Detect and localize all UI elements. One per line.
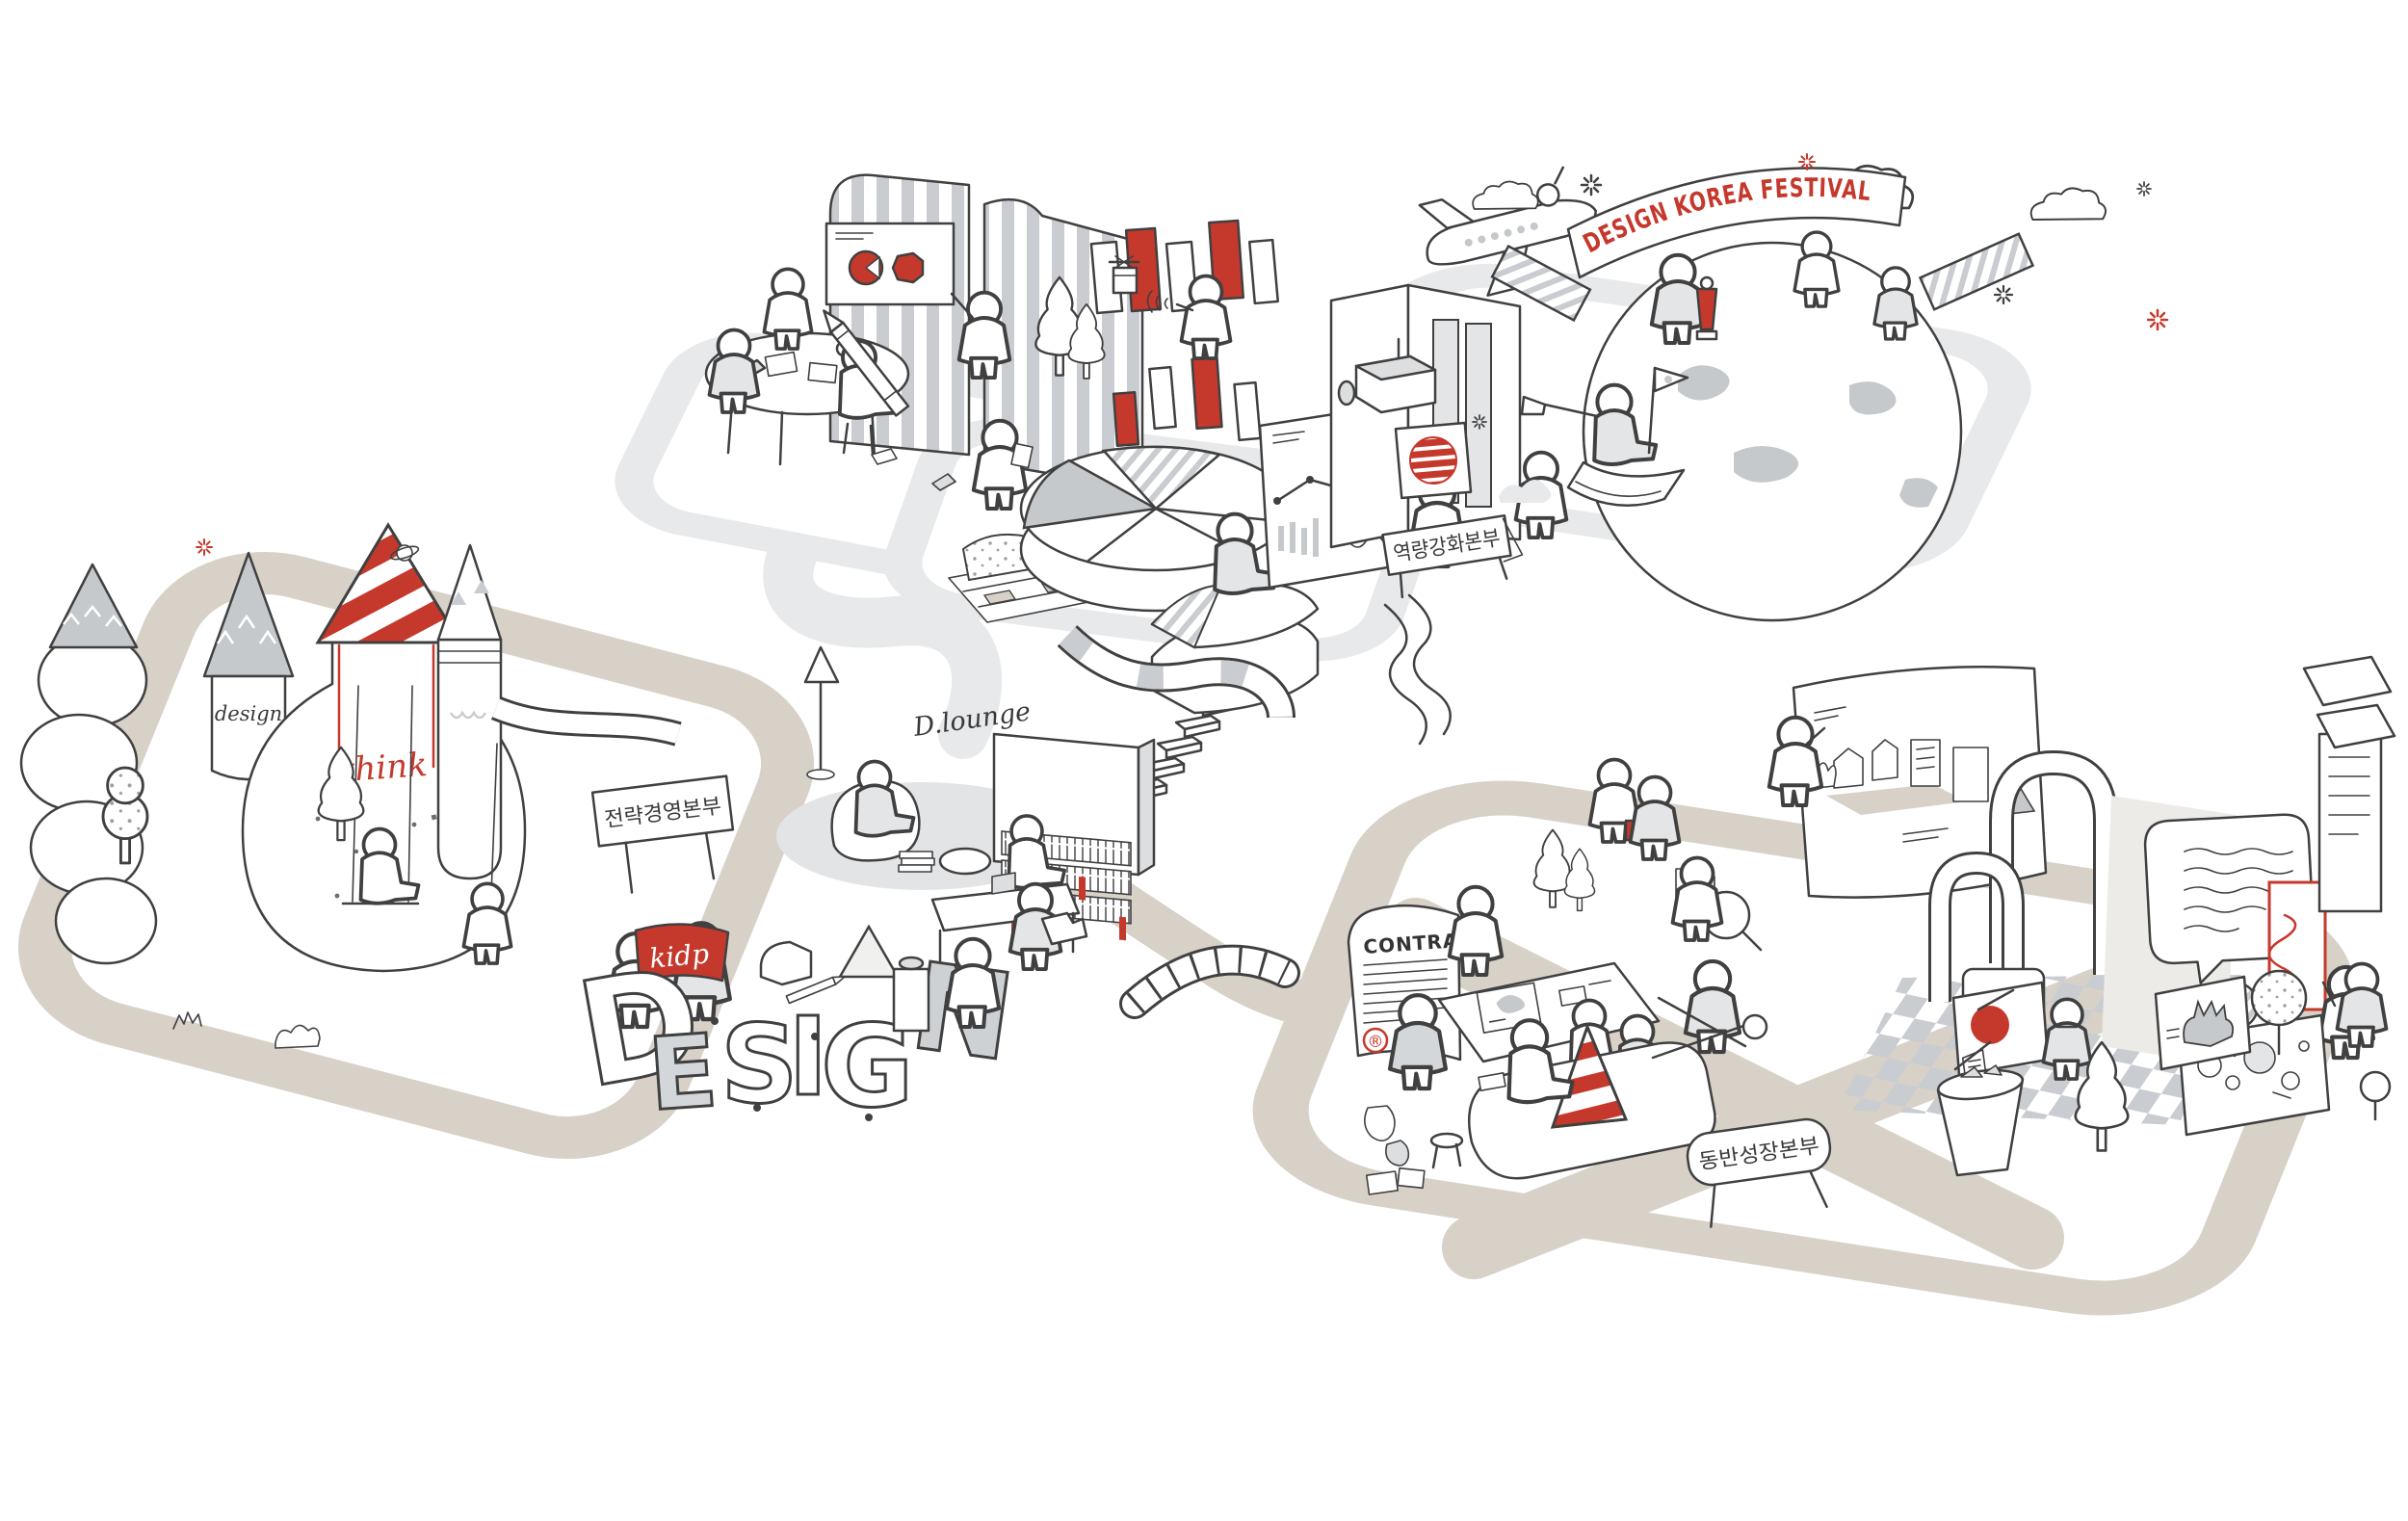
sparkle	[2148, 310, 2167, 329]
mini-building	[1911, 740, 1940, 786]
sparkle	[1799, 154, 1815, 170]
festival-scene: DESIGN KOREA FESTIVAL	[1331, 154, 2167, 620]
kidp-illustration: DESIGN KOREA FESTIVAL	[0, 0, 2408, 1521]
right-panels	[2304, 657, 2395, 911]
book-stack	[899, 852, 934, 872]
letter-e: E	[644, 1011, 720, 1134]
ball-on-stand	[2361, 1072, 2390, 1101]
beanbag-reader	[832, 762, 920, 861]
tower-script-text: design	[215, 702, 282, 725]
hand-panel	[2156, 977, 2250, 1069]
arrow-sign	[2304, 657, 2391, 705]
sparkle	[196, 539, 212, 555]
whiteboard	[826, 223, 954, 304]
banner-ribbon-right	[1921, 234, 2033, 309]
sparkle	[1582, 175, 1601, 195]
illustration-canvas: DESIGN KOREA FESTIVAL	[0, 0, 2408, 1521]
pouf	[940, 849, 990, 874]
cloud	[2031, 188, 2106, 220]
mini-building	[1953, 747, 1988, 801]
sparkle	[2137, 182, 2151, 196]
pie-separated-slice	[1152, 584, 1318, 713]
registered-symbol: ®	[1368, 1033, 1384, 1052]
drone-with-package	[1110, 256, 1139, 293]
vase	[1386, 1141, 1408, 1166]
laptop	[992, 873, 1015, 894]
cloud	[1473, 182, 1538, 209]
sparkle	[1995, 286, 2012, 303]
